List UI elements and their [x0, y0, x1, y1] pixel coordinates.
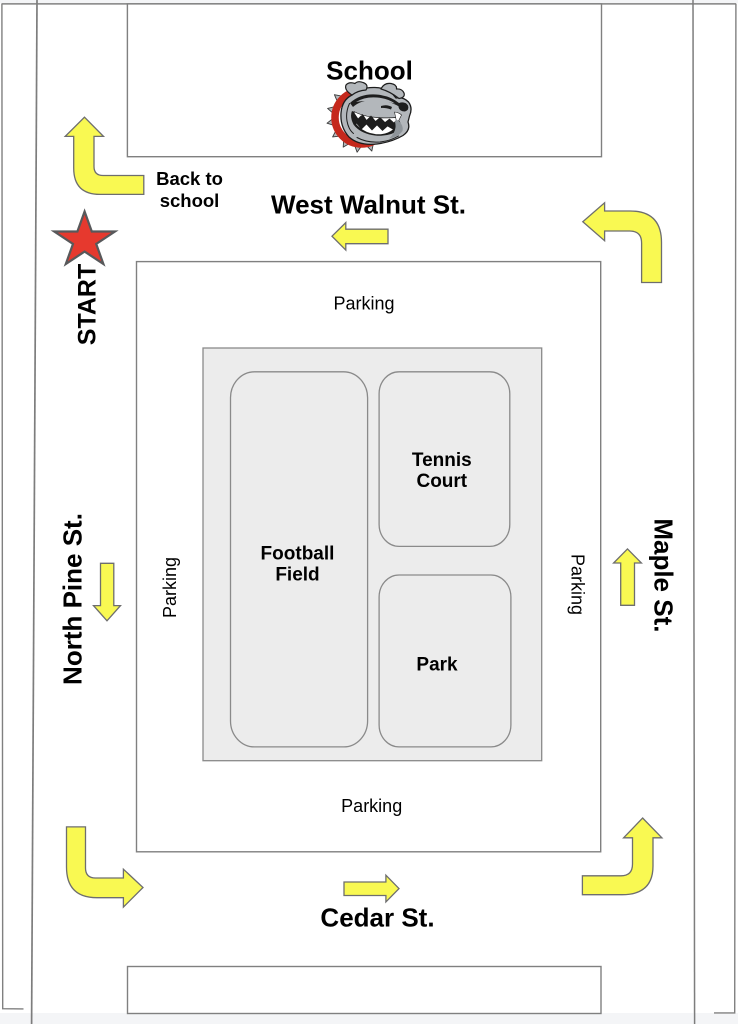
svg-text:Tennis: Tennis — [412, 450, 472, 471]
svg-text:Parking: Parking — [568, 554, 588, 615]
svg-text:Maple St.: Maple St. — [649, 518, 679, 632]
svg-text:Court: Court — [416, 471, 467, 492]
svg-text:Field: Field — [275, 564, 319, 585]
svg-text:Parking: Parking — [333, 294, 394, 314]
svg-text:Cedar St.: Cedar St. — [320, 903, 434, 933]
svg-text:Back to: Back to — [156, 168, 223, 189]
svg-text:West Walnut St.: West Walnut St. — [271, 190, 466, 220]
svg-text:Football: Football — [261, 543, 335, 564]
svg-text:School: School — [326, 56, 413, 86]
svg-text:Parking: Parking — [160, 557, 180, 618]
svg-text:North Pine St.: North Pine St. — [58, 513, 88, 685]
svg-text:school: school — [160, 190, 220, 211]
svg-text:START: START — [74, 264, 102, 345]
svg-text:Parking: Parking — [341, 796, 402, 816]
svg-text:Park: Park — [416, 655, 458, 676]
